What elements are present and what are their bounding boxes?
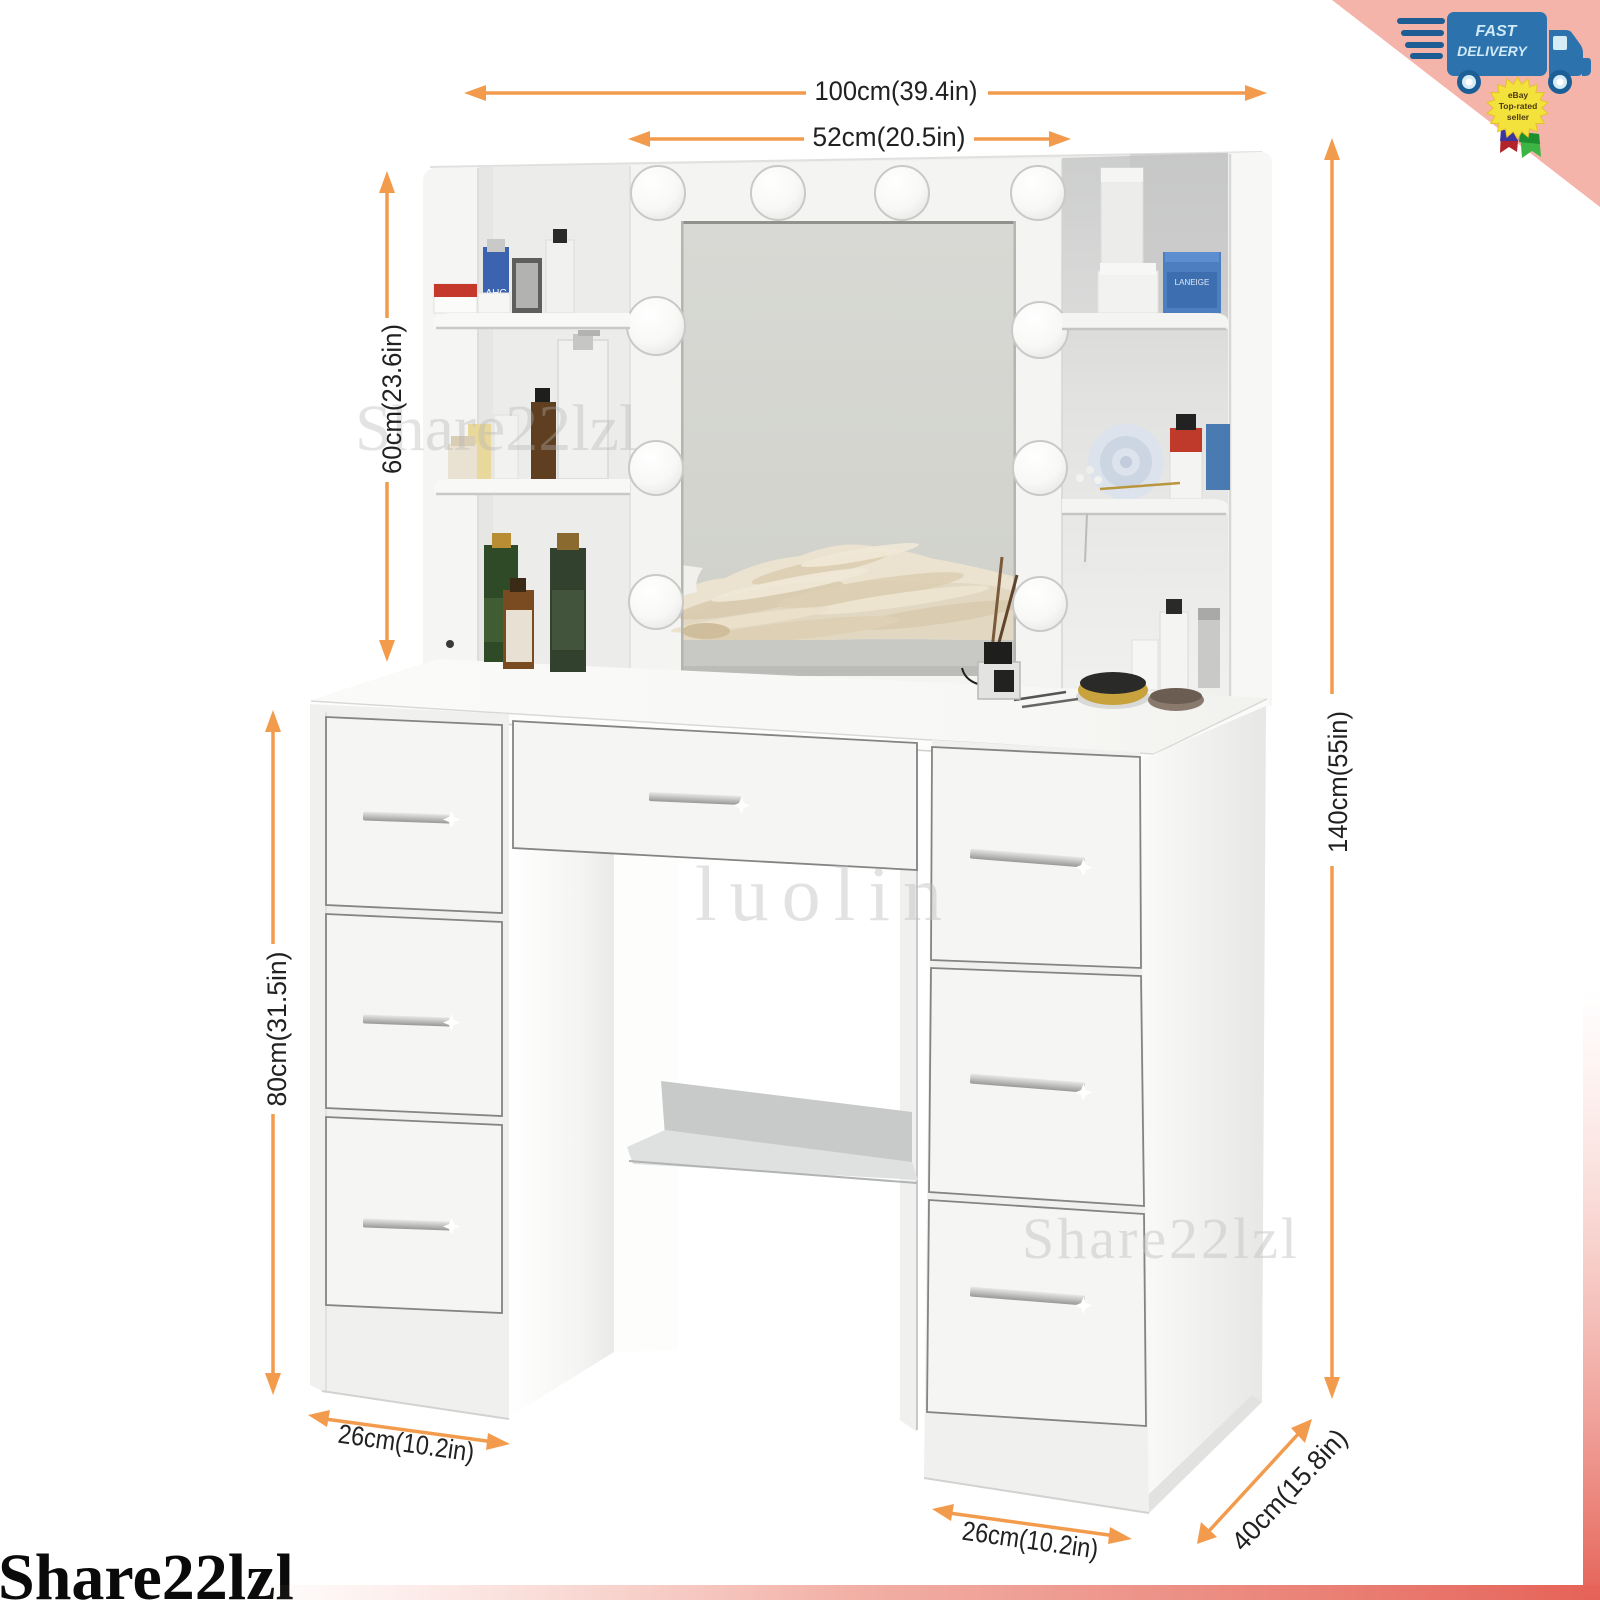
svg-text:140cm(55in): 140cm(55in) [1323,711,1353,853]
svg-text:Share22lzl: Share22lzl [1022,1206,1300,1271]
svg-text:Top-rated: Top-rated [1499,101,1538,111]
svg-text:100cm(39.4in): 100cm(39.4in) [815,76,978,106]
svg-text:DELIVERY: DELIVERY [1457,43,1528,59]
svg-text:seller: seller [1507,112,1530,122]
svg-text:Share22lzl: Share22lzl [0,1541,294,1600]
svg-text:60cm(23.6in): 60cm(23.6in) [377,324,407,474]
svg-text:LANEIGE: LANEIGE [1175,278,1210,287]
svg-text:80cm(31.5in): 80cm(31.5in) [262,952,292,1107]
svg-text:52cm(20.5in): 52cm(20.5in) [813,122,966,152]
svg-text:eBay: eBay [1508,90,1529,100]
svg-text:luolin: luolin [695,850,955,937]
svg-text:FAST: FAST [1476,23,1518,40]
